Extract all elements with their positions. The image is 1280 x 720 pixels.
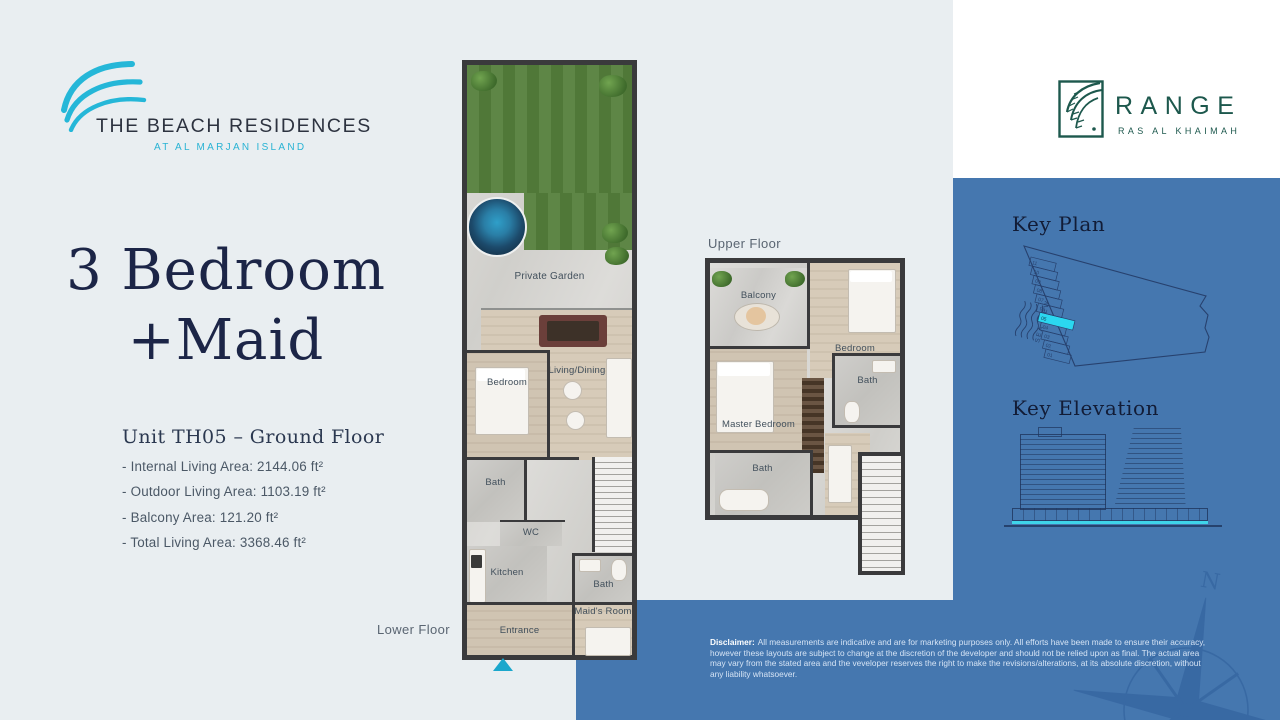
brand-tagline: AT AL MARJAN ISLAND (154, 142, 306, 153)
developer-logo: RANGE RAS AL KHAIMAH (1058, 80, 1278, 142)
key-plan-heading: Key Plan (1012, 212, 1105, 236)
highlighted-floor-line (1012, 521, 1208, 524)
room-label-master: Master Bedroom (710, 419, 807, 430)
sofa-icon (828, 445, 852, 503)
room-label-wc: WC (500, 527, 562, 538)
unit-detail-balcony: - Balcony Area: 121.20 ft² (122, 510, 442, 525)
room-label-balcony: Balcony (710, 290, 807, 301)
upper-stairs (858, 452, 905, 575)
room-label-upper-bath2: Bath (715, 463, 810, 474)
key-plan-diagram: SEA VIEW 01 02 03 04 05 06 07 08 09 10 1… (1008, 240, 1233, 370)
room-label-upper-bath: Bath (835, 375, 900, 386)
plant-icon (605, 247, 629, 265)
room-label-garden: Private Garden (467, 271, 632, 282)
developer-name: RANGE (1115, 92, 1241, 121)
toilet-icon (844, 401, 860, 423)
sink-icon (872, 360, 896, 373)
palm-icon (1058, 80, 1104, 138)
unit-detail-internal: - Internal Living Area: 2144.06 ft² (122, 459, 442, 474)
unit-detail-outdoor: - Outdoor Living Area: 1103.19 ft² (122, 484, 442, 499)
room-label-kitchen: Kitchen (467, 567, 547, 578)
brand-name: THE BEACH RESIDENCES (96, 115, 372, 138)
key-elevation-diagram (1010, 424, 1235, 536)
room-label-entrance: Entrance (467, 625, 572, 636)
lower-floor-plan: Private Garden Living/Dining Bedroom Bat… (462, 60, 637, 660)
room-label-maid: Maid's Room (571, 606, 635, 617)
developer-location: RAS AL KHAIMAH (1118, 126, 1240, 136)
unit-details: Unit TH05 – Ground Floor - Internal Livi… (122, 426, 442, 550)
disclaimer: Disclaimer:All measurements are indicati… (710, 637, 1213, 679)
right-tower (1114, 424, 1188, 508)
pillow-icon (850, 271, 892, 282)
key-plan-unit: 11 (1031, 260, 1038, 267)
unit-detail-total: - Total Living Area: 3368.46 ft² (122, 535, 442, 550)
lower-floor-caption: Lower Floor (377, 622, 450, 637)
page-title: 3 Bedroom +Maid (50, 236, 402, 376)
left-tower (1020, 434, 1106, 510)
room-label-bedroom: Bedroom (467, 377, 547, 388)
room-label-bath: Bath (467, 477, 524, 488)
disclaimer-text: All measurements are indicative and are … (710, 637, 1205, 678)
bath-room (467, 460, 524, 522)
armchair-icon (563, 381, 582, 400)
key-elevation-heading: Key Elevation (1012, 396, 1159, 420)
brand-logo: THE BEACH RESIDENCES AT AL MARJAN ISLAND (58, 58, 378, 158)
title-line2: +Maid (50, 306, 402, 376)
dining-table-icon (547, 321, 599, 341)
sink-icon (579, 559, 601, 572)
toilet-icon (611, 559, 627, 581)
stairs (595, 457, 632, 552)
ground-line (1004, 525, 1222, 527)
podium (1012, 508, 1208, 521)
jacuzzi-icon (467, 197, 527, 257)
entrance-arrow-icon (493, 658, 513, 671)
pillow-icon (718, 363, 770, 376)
brochure-page: THE BEACH RESIDENCES AT AL MARJAN ISLAND… (0, 0, 1280, 720)
unit-heading: Unit TH05 – Ground Floor (122, 426, 442, 448)
bathtub-icon (719, 489, 769, 511)
bed-icon (585, 627, 631, 656)
compass-icon: N (1056, 552, 1280, 720)
upper-floor-caption: Upper Floor (708, 236, 781, 251)
armchair-icon (566, 411, 585, 430)
room-label-bath2: Bath (575, 579, 632, 590)
compass-north-label: N (1199, 568, 1222, 596)
disclaimer-label: Disclaimer: (710, 637, 755, 647)
title-line1: 3 Bedroom (50, 236, 402, 306)
balcony-table-icon (746, 307, 766, 325)
